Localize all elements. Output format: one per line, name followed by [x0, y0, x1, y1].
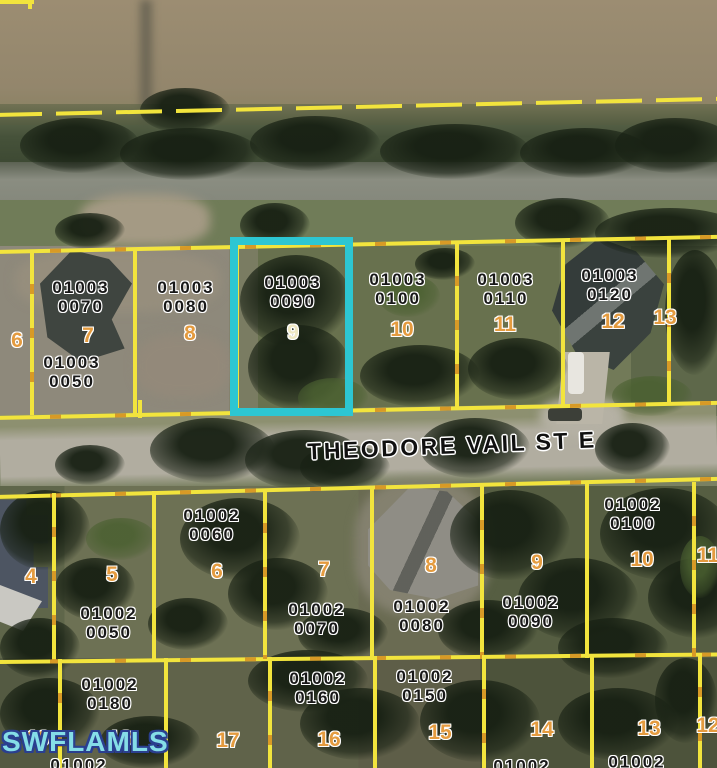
- tree-canopy-blob: [468, 338, 568, 400]
- parcel-boundary-line: [561, 240, 565, 406]
- parcel-boundary-line: [133, 248, 137, 414]
- tree-canopy-blob: [148, 598, 228, 650]
- parcel-boundary-line: [138, 400, 142, 418]
- apn-label: 010020060: [183, 506, 240, 544]
- parcel-boundary-line: [268, 657, 272, 768]
- parcel-boundary-line: [480, 486, 484, 659]
- lot-number: 12: [696, 714, 717, 738]
- parcel-boundary-line: [455, 242, 459, 408]
- tree-canopy-blob: [558, 618, 668, 678]
- lot-number: 13: [653, 306, 676, 330]
- apn-label: 010020150: [396, 667, 453, 705]
- lot-number: 7: [82, 324, 94, 348]
- apn-label: 010030110: [477, 270, 534, 308]
- lot-number: 14: [530, 718, 553, 742]
- apn-label: 010020160: [289, 669, 346, 707]
- apn-label: 010030080: [157, 278, 214, 316]
- lot-number: 11: [494, 313, 516, 337]
- apn-label: 010030100: [369, 270, 426, 308]
- apn-label: 010020070: [288, 600, 345, 638]
- parcel-boundary-line: [263, 489, 267, 659]
- apn-label: 010020090: [502, 593, 559, 631]
- bush-blob: [86, 518, 156, 560]
- parcel-boundary-line: [28, 0, 32, 9]
- cleared-dirt-patch: [135, 335, 230, 397]
- lot-number: 4: [25, 565, 37, 589]
- apn-label-partial: 01002: [608, 753, 665, 768]
- lot-number: 6: [211, 560, 223, 584]
- lot-number: 11: [697, 544, 717, 568]
- lot-number: 9: [531, 551, 543, 575]
- apn-label: 010020050: [80, 604, 137, 642]
- lot-number: 5: [106, 563, 118, 587]
- lot-number: 8: [425, 554, 437, 578]
- lot-number: 7: [318, 558, 330, 582]
- lot-number: 12: [601, 310, 624, 334]
- parcel-boundary-line: [370, 487, 374, 659]
- bush-blob: [612, 376, 692, 416]
- apn-label-highlighted: 010030090: [264, 273, 321, 311]
- lot-number: 15: [428, 721, 451, 745]
- road-tree-shadow: [55, 445, 125, 485]
- lot-number: 8: [184, 322, 196, 346]
- tree-canopy-blob: [55, 213, 125, 249]
- parcel-boundary-line: [52, 493, 56, 661]
- apn-label: 010030120: [581, 266, 638, 304]
- parked-trailer: [568, 352, 584, 394]
- tree-canopy-blob: [0, 618, 80, 678]
- apn-label: 010030050: [43, 353, 100, 391]
- parked-car: [548, 408, 582, 421]
- apn-label: 010020180: [81, 675, 138, 713]
- apn-label: 010020100: [604, 495, 661, 533]
- parcel-boundary-line: [698, 653, 702, 768]
- parcel-boundary-line: [152, 491, 156, 660]
- apn-label: 010030070: [52, 278, 109, 316]
- apn-label-partial: 01002: [493, 757, 550, 768]
- parcel-boundary-line: [482, 655, 486, 768]
- road-tree-shadow: [595, 423, 670, 475]
- lot-number: 16: [317, 728, 340, 752]
- parcel-boundary-line: [30, 250, 34, 415]
- parcel-boundary-line: [373, 656, 377, 768]
- lot-number: 10: [390, 318, 413, 342]
- mls-watermark: SWFLAMLS: [2, 726, 169, 758]
- aerial-parcel-map[interactable]: 010030050 010030070 010030080 010030090 …: [0, 0, 717, 768]
- tree-canopy-blob: [380, 124, 530, 179]
- tree-canopy-blob: [250, 116, 380, 171]
- apn-label: 010020080: [393, 597, 450, 635]
- lot-number: 17: [216, 729, 239, 753]
- parcel-boundary-line: [692, 482, 696, 657]
- tree-canopy-blob: [0, 490, 90, 570]
- lot-number: 10: [630, 548, 653, 572]
- lot-number-highlighted: 9: [287, 321, 299, 345]
- lot-number: 13: [637, 717, 660, 741]
- parcel-boundary-line: [590, 654, 594, 768]
- parcel-boundary-line: [585, 484, 589, 658]
- tree-canopy-blob: [120, 128, 260, 180]
- tree-canopy-blob: [360, 345, 480, 407]
- lot-number: 6: [11, 329, 23, 353]
